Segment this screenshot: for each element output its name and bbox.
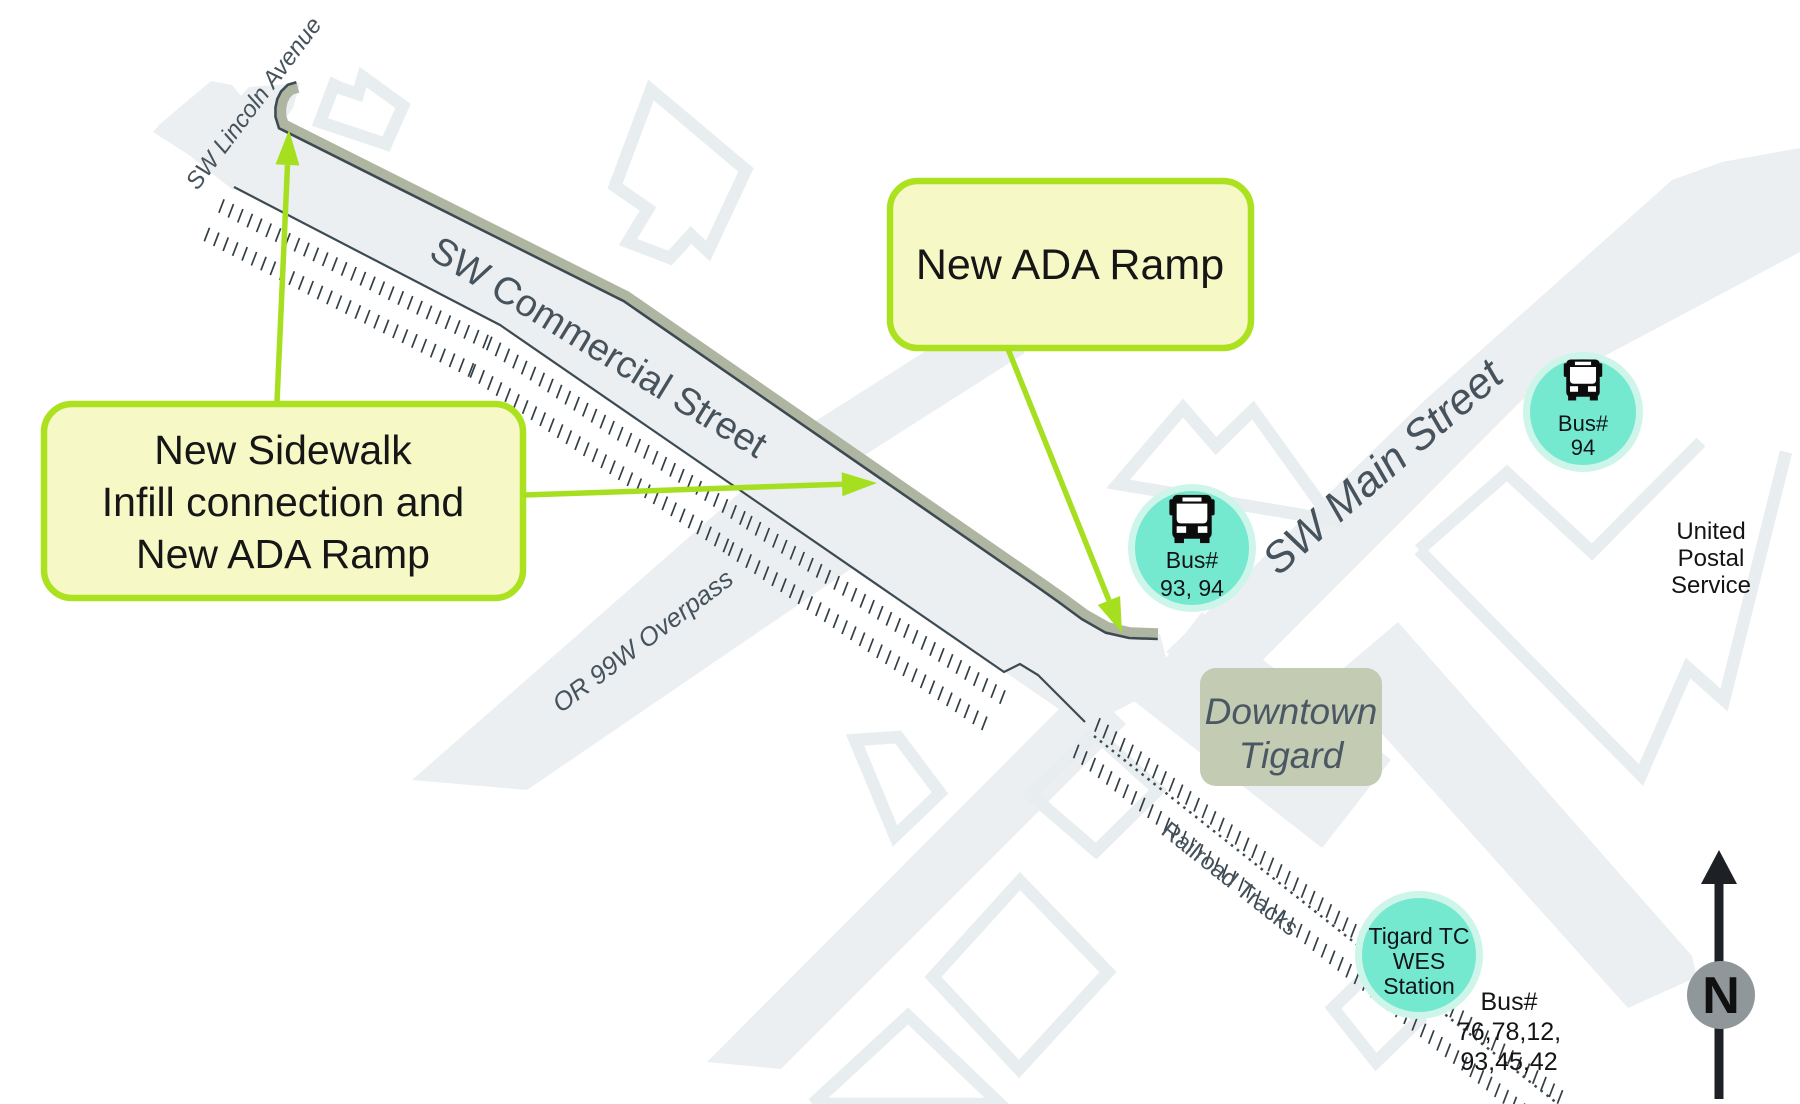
svg-text:Bus#: Bus# — [1166, 547, 1219, 573]
svg-text:Infill connection and: Infill connection and — [102, 479, 464, 525]
svg-text:Tigard TC: Tigard TC — [1369, 923, 1470, 949]
svg-text:New ADA Ramp: New ADA Ramp — [136, 531, 430, 577]
svg-text:WES: WES — [1393, 948, 1445, 974]
svg-text:United: United — [1676, 518, 1745, 545]
svg-text:Service: Service — [1671, 572, 1751, 599]
svg-text:93,45,42: 93,45,42 — [1460, 1048, 1557, 1076]
svg-text:76,78,12,: 76,78,12, — [1457, 1018, 1561, 1046]
svg-text:N: N — [1702, 967, 1740, 1025]
svg-text:Tigard: Tigard — [1239, 735, 1345, 776]
svg-text:Downtown: Downtown — [1205, 691, 1378, 732]
svg-text:93, 94: 93, 94 — [1160, 575, 1224, 601]
svg-text:94: 94 — [1571, 435, 1595, 460]
svg-text:New Sidewalk: New Sidewalk — [154, 427, 412, 473]
svg-text:New ADA Ramp: New ADA Ramp — [916, 241, 1224, 289]
svg-text:Postal: Postal — [1678, 545, 1745, 572]
svg-text:Bus#: Bus# — [1558, 411, 1609, 436]
svg-text:Station: Station — [1383, 973, 1455, 999]
svg-text:Bus#: Bus# — [1481, 988, 1538, 1016]
